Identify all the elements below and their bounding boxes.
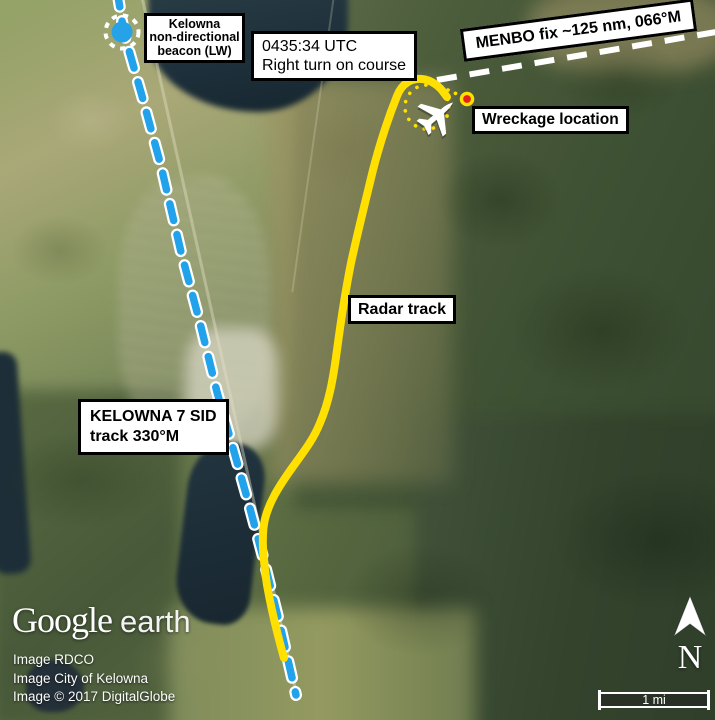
ndb-beacon-icon [112,22,133,43]
sid-label-box: KELOWNA 7 SID track 330°M [78,399,229,455]
compass: N [667,596,713,675]
scale-bar: 1 mi [599,692,709,708]
imagery-attribution: Image RDCO Image City of Kelowna Image ©… [13,651,175,707]
radar-track-label: Radar track [358,301,446,318]
ndb-label-line3: beacon (LW) [147,45,242,58]
wreckage-marker-icon [461,93,472,104]
ndb-label-line1: Kelowna [147,18,242,31]
google-earth-logo: Google earth [12,599,191,641]
sid-label-line1: KELOWNA 7 SID [90,407,217,427]
satellite-map: Kelowna non-directional beacon (LW) 0435… [0,0,715,720]
airplane-silhouette [410,87,466,142]
north-label: N [678,641,703,675]
wreckage-label-box: Wreckage location [472,106,629,134]
logo-google-text: Google [12,599,112,641]
sid-label-line2: track 330°M [90,427,217,447]
turn-time-line2: Right turn on course [262,56,406,75]
north-arrow-icon [674,596,706,636]
wreckage-label: Wreckage location [482,111,619,128]
airplane-icon [409,87,467,145]
scale-tick-right [707,690,710,710]
logo-earth-text: earth [120,604,191,640]
ndb-label-line2: non-directional [147,31,242,44]
radar-track-label-box: Radar track [348,295,456,324]
ndb-label-box: Kelowna non-directional beacon (LW) [144,13,245,63]
attribution-line: Image City of Kelowna [13,670,175,689]
scale-label: 1 mi [642,694,666,707]
attribution-line: Image © 2017 DigitalGlobe [13,688,175,707]
attribution-line: Image RDCO [13,651,175,670]
scale-tick-left [598,690,601,710]
radar-track-line [263,79,447,658]
turn-time-line1: 0435:34 UTC [262,37,406,56]
turn-time-label-box: 0435:34 UTC Right turn on course [251,31,417,81]
